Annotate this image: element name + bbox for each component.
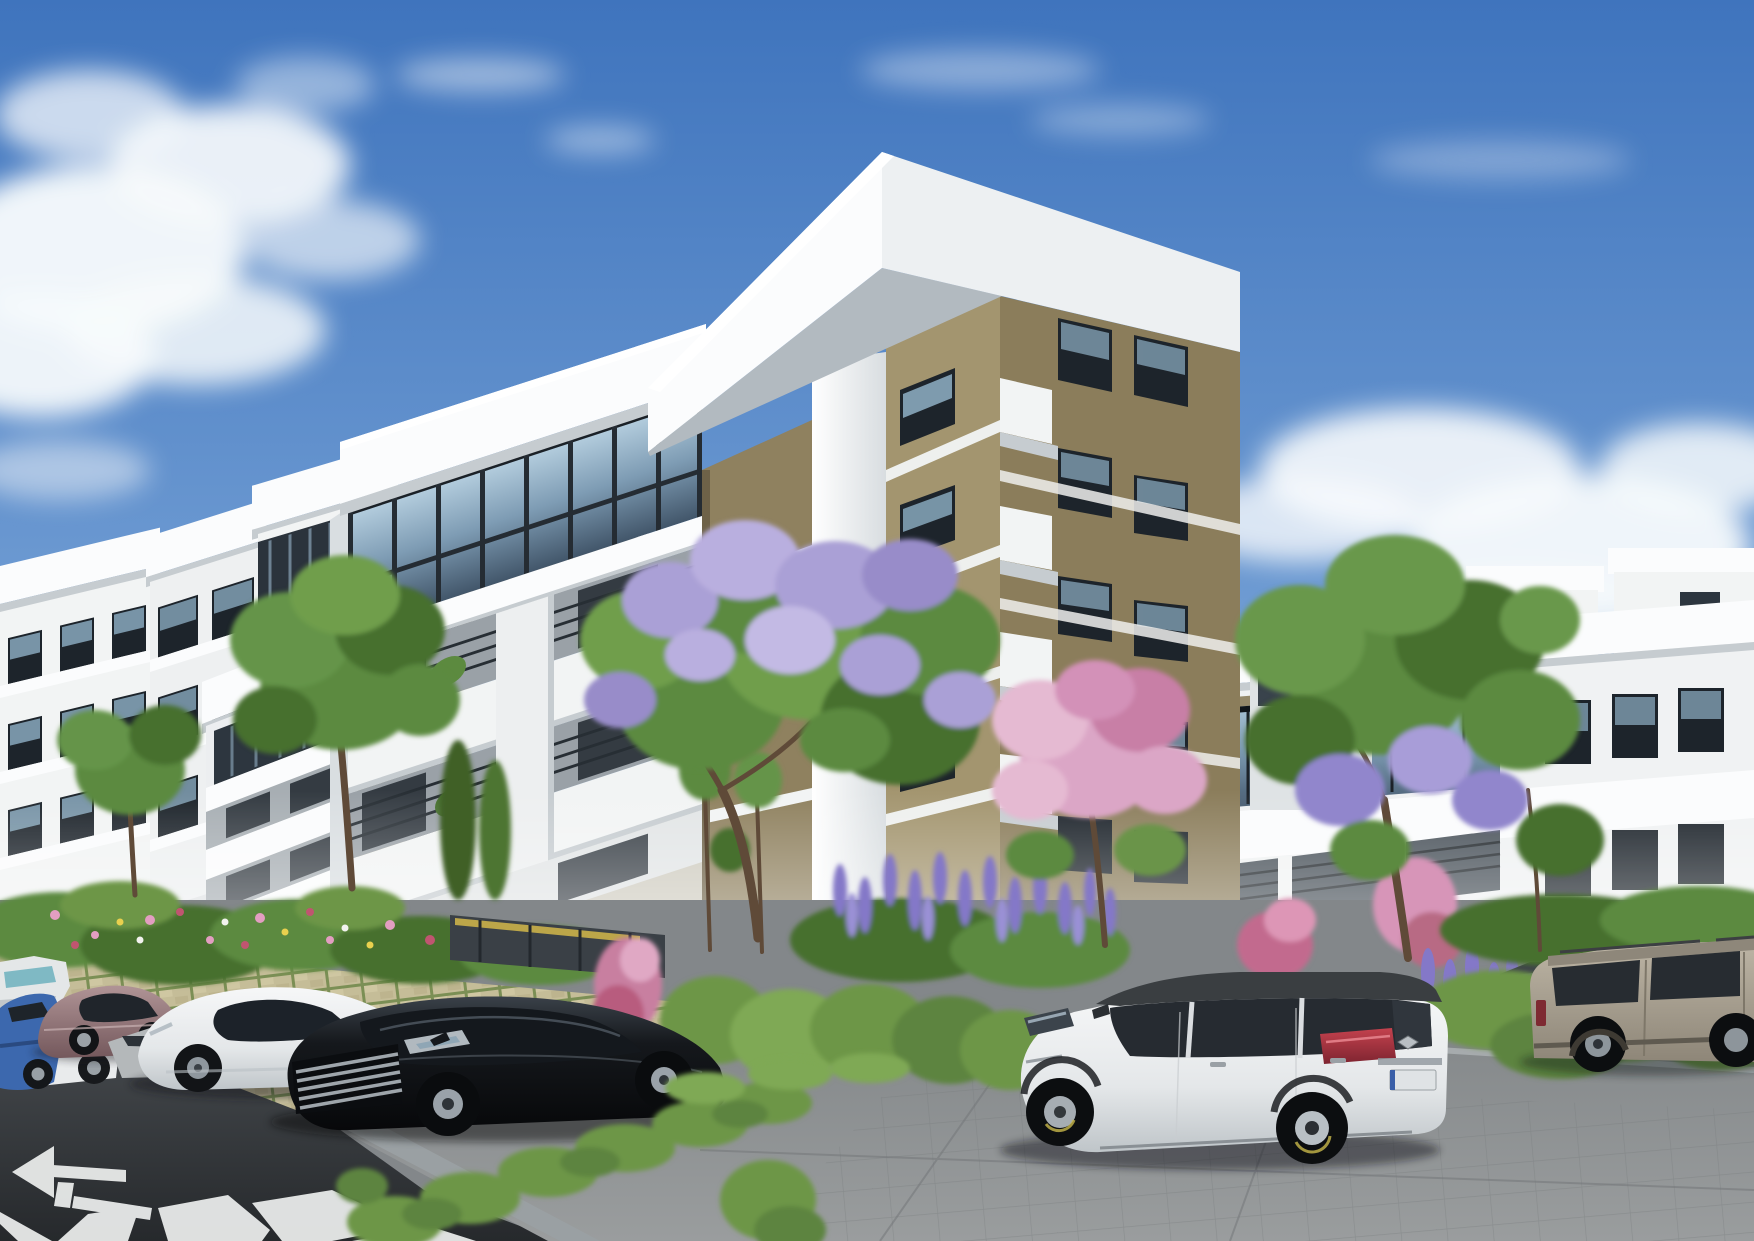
curb-bush <box>336 1168 388 1204</box>
license-plate <box>1390 1070 1436 1090</box>
suv-beige <box>1520 937 1754 1076</box>
architectural-rendering <box>0 0 1754 1241</box>
taillight <box>1536 1000 1546 1026</box>
window <box>1552 960 1640 1006</box>
window <box>1650 951 1740 1000</box>
render-canvas <box>0 0 1754 1241</box>
